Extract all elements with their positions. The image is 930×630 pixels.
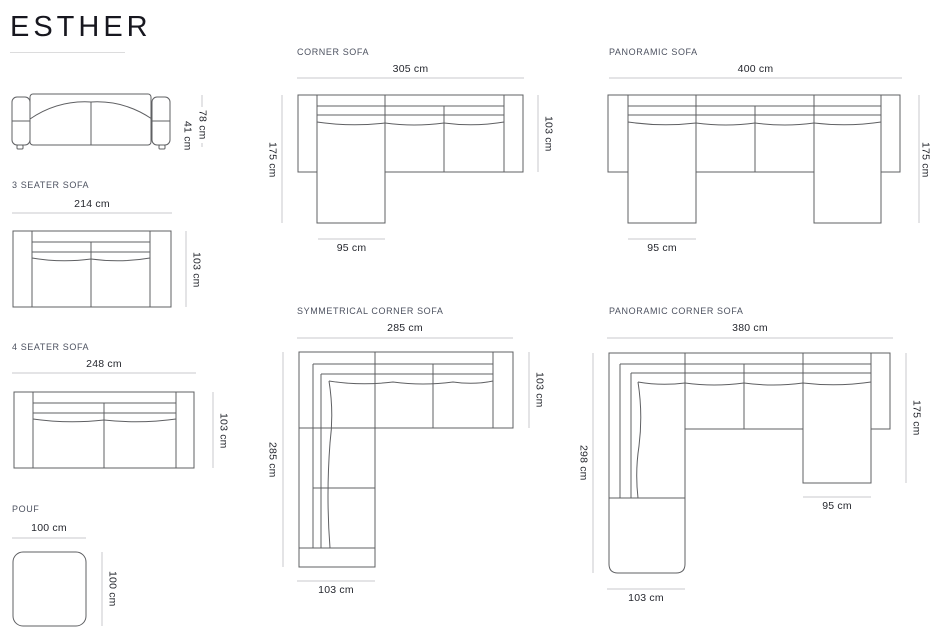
dim-panoramic-chaise: 95 cm: [628, 242, 696, 254]
pouf-drawing: [13, 552, 86, 626]
dim-four-seater-depth: 103 cm: [217, 413, 230, 449]
dim-symmetrical-bottom: 103 cm: [297, 584, 375, 596]
label-four-seater: 4 SEATER SOFA: [12, 342, 89, 352]
dim-panoramic-width: 400 cm: [609, 63, 902, 75]
symmetrical-corner-drawing: [299, 352, 513, 567]
dim-panoramic-corner-right: 175 cm: [910, 400, 923, 436]
dim-three-seater-width: 214 cm: [12, 198, 172, 210]
label-symmetrical-corner: SYMMETRICAL CORNER SOFA: [297, 306, 443, 316]
label-pouf: POUF: [12, 504, 39, 514]
dim-corner-depth: 103 cm: [542, 116, 555, 152]
label-three-seater: 3 SEATER SOFA: [12, 180, 89, 190]
dim-panoramic-corner-bottom: 103 cm: [607, 592, 685, 604]
label-panoramic-corner: PANORAMIC CORNER SOFA: [609, 306, 743, 316]
label-panoramic: PANORAMIC SOFA: [609, 47, 698, 57]
dim-corner-width: 305 cm: [297, 63, 524, 75]
dim-symmetrical-depth: 103 cm: [533, 372, 546, 408]
diagram-linework: [0, 0, 930, 630]
title-underline: [10, 52, 125, 53]
dim-corner-chaise: 95 cm: [318, 242, 385, 254]
dim-pouf-depth: 100 cm: [106, 571, 119, 607]
dim-front-total-height: 78 cm: [196, 107, 209, 143]
dim-four-seater-width: 248 cm: [12, 358, 196, 370]
dim-panoramic-side: 175 cm: [919, 142, 930, 178]
three-seater-drawing: [13, 231, 171, 307]
dim-pouf-width: 100 cm: [8, 522, 90, 534]
dim-three-seater-depth: 103 cm: [190, 252, 203, 288]
dim-corner-side: 175 cm: [266, 142, 279, 178]
dim-panoramic-corner-chaise: 95 cm: [803, 500, 871, 512]
panoramic-sofa-drawing: [608, 95, 900, 223]
dim-panoramic-corner-width: 380 cm: [607, 322, 893, 334]
label-corner: CORNER SOFA: [297, 47, 369, 57]
collection-title: ESTHER: [10, 11, 152, 44]
dim-front-seat-height: 41 cm: [181, 118, 194, 154]
corner-sofa-drawing: [298, 95, 523, 223]
dim-symmetrical-side: 285 cm: [266, 442, 279, 478]
panoramic-corner-drawing: [609, 353, 890, 573]
dim-symmetrical-width: 285 cm: [297, 322, 513, 334]
front-view-drawing: [12, 94, 170, 149]
dimension-sheet: ESTHER 3 SEATER SOFA 4 SEATER SOFA POUF …: [0, 0, 930, 630]
four-seater-drawing: [14, 392, 194, 468]
dim-panoramic-corner-side: 298 cm: [577, 445, 590, 481]
